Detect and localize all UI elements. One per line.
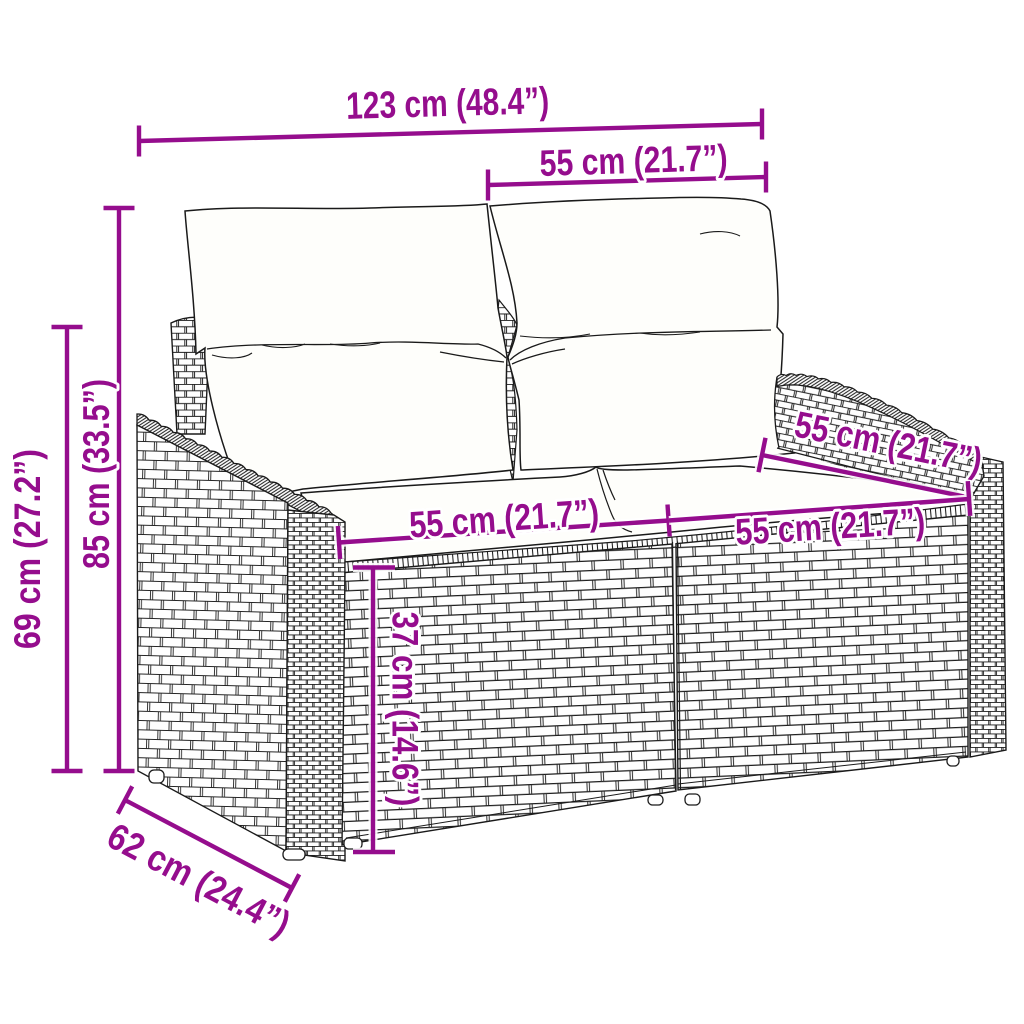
svg-text:85 cm (33.5”): 85 cm (33.5”)	[76, 379, 117, 569]
svg-text:37 cm (14.6”): 37 cm (14.6”)	[385, 612, 426, 807]
svg-text:123 cm (48.4”): 123 cm (48.4”)	[346, 80, 550, 128]
svg-text:69 cm (27.2”): 69 cm (27.2”)	[7, 449, 48, 649]
svg-text:55 cm (21.7”): 55 cm (21.7”)	[539, 137, 728, 184]
